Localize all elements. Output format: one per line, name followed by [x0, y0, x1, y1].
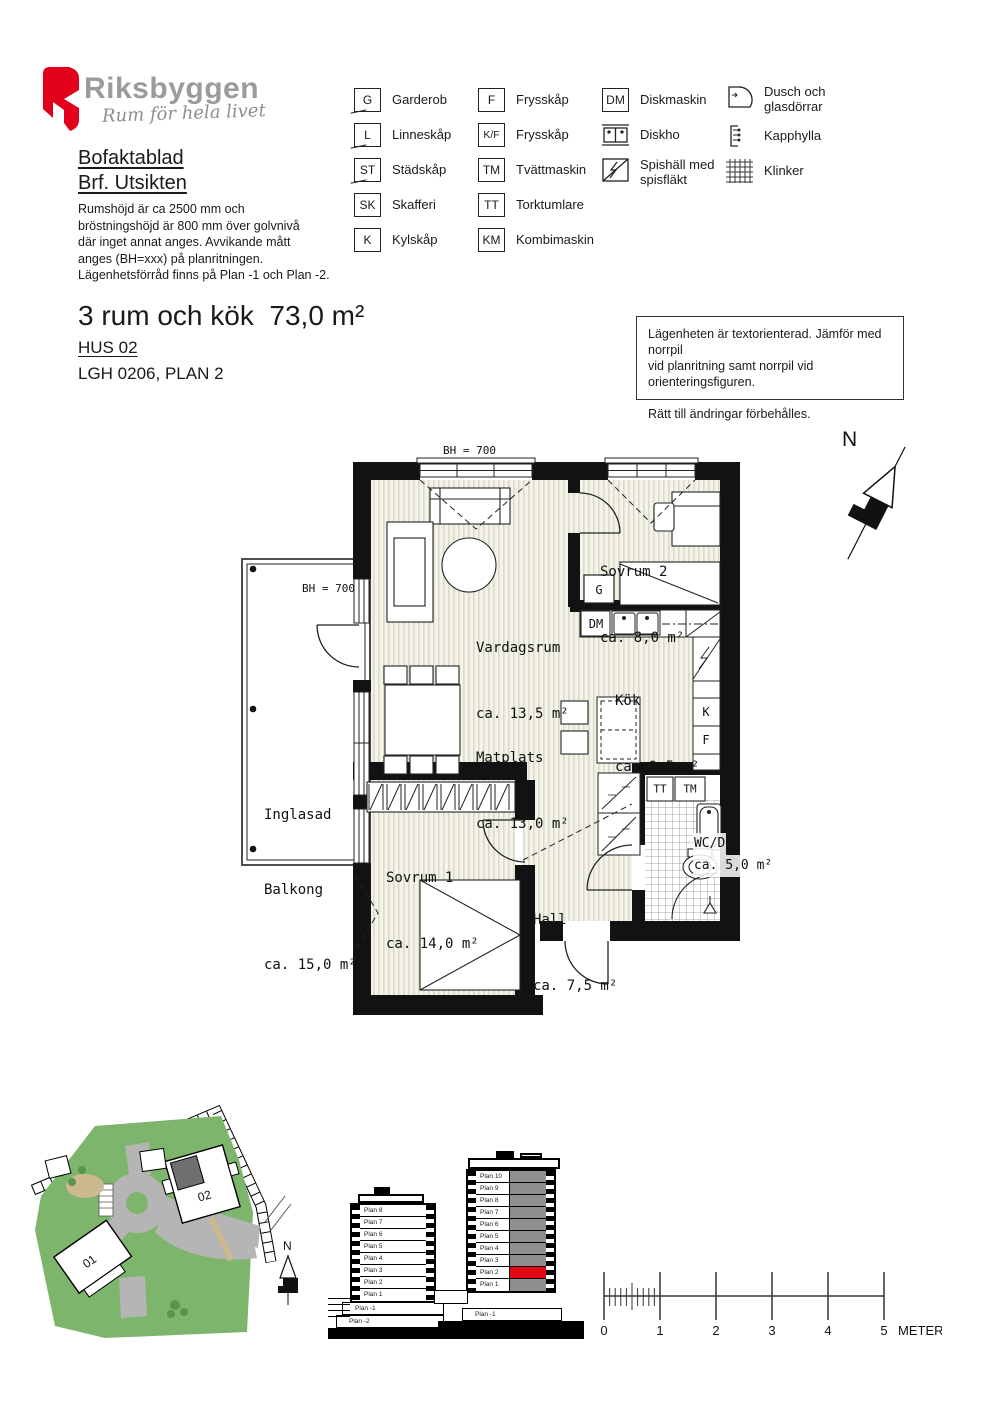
legend-item-frysskap: F Frysskåp — [478, 88, 594, 112]
legend-item-kylskap: K Kylskåp — [354, 228, 451, 252]
diskmaskin-symbol: DM — [602, 88, 629, 112]
skafferi-symbol: SK — [354, 193, 381, 217]
marker-torktumlare: TT — [653, 783, 666, 796]
scale-bar: 0 1 2 3 4 5 METER — [592, 1262, 942, 1342]
floor-row: Plan 10 — [468, 1171, 554, 1183]
description-line: Lägenhetsförråd finns på Plan -1 och Pla… — [78, 267, 330, 284]
building-right: Plan 10Plan 9Plan 8Plan 7Plan 6Plan 5Pla… — [466, 1169, 556, 1293]
floor-row: Plan 6 — [468, 1219, 554, 1231]
legend-item-spishall: Spishäll med spisfläkt — [602, 158, 720, 182]
description-line: bröstningshöjd är 800 mm över golvnivå — [78, 218, 330, 235]
doc-title: Bofaktablad Brf. Utsikten — [78, 146, 187, 196]
note-line: Lägenheten är textorienterad. Jämför med… — [648, 326, 892, 358]
floor-row: Plan 9 — [468, 1183, 554, 1195]
floor-row: Plan 2 — [352, 1277, 434, 1289]
floor-row: Plan 8 — [352, 1205, 434, 1217]
room-sovrum1: Sovrum 1 ca. 14,0 m² — [386, 823, 479, 999]
description-line: där inget annat anges. Avvikande mått — [78, 234, 330, 251]
floor-row: Plan 3 — [352, 1265, 434, 1277]
site-playground — [66, 1174, 104, 1198]
scale-label-0: 0 — [600, 1323, 607, 1338]
floor-row: Plan 2 — [468, 1267, 554, 1279]
north-label-site: N — [283, 1239, 292, 1253]
right-floor-list: Plan 10Plan 9Plan 8Plan 7Plan 6Plan 5Pla… — [468, 1171, 554, 1291]
doc-title-line2: Brf. Utsikten — [78, 171, 187, 196]
marker-garderob: G — [595, 583, 602, 597]
marker-diskmaskin: DM — [589, 617, 603, 631]
legend-item-torktumlare: TT Torktumlare — [478, 193, 594, 217]
marker-tvattmaskin: TM — [683, 783, 696, 796]
kombimaskin-symbol: KM — [478, 228, 505, 252]
scale-label-1: 1 — [656, 1323, 663, 1338]
riksbyggen-logo — [39, 64, 83, 134]
brand-tagline: Rum för hela livet — [102, 100, 266, 127]
ground — [328, 1328, 444, 1339]
connector — [434, 1290, 468, 1304]
legend-item-klinker: Klinker — [726, 159, 848, 183]
site-shed — [140, 1148, 167, 1171]
tvattmaskin-symbol: TM — [478, 158, 505, 182]
description-line: anges (BH=xxx) på planritningen. — [78, 251, 330, 268]
bh-balcony-label: BH = 700 — [302, 582, 355, 595]
building-left: Plan 8Plan 7Plan 6Plan 5Plan 4Plan 3Plan… — [350, 1203, 436, 1303]
legend-column-2: F Frysskåp K/F Frysskåp TM Tvättmaskin T… — [478, 88, 594, 263]
apartment-unit: LGH 0206, PLAN 2 — [78, 364, 224, 384]
frysskap-symbol: F — [478, 88, 505, 112]
floor-row: Plan 4 — [352, 1253, 434, 1265]
legend-item-kombimaskin: KM Kombimaskin — [478, 228, 594, 252]
floor-plan: BH = 700 BH = 700 Vardagsrum ca. 13,5 m²… — [238, 443, 746, 1028]
scale-label-2: 2 — [712, 1323, 719, 1338]
scale-label-5: 5 — [880, 1323, 887, 1338]
linneskap-symbol: L — [354, 123, 381, 147]
kylskap-symbol: K — [354, 228, 381, 252]
room-matplats: Matplats ca. 13,0 m² — [476, 703, 569, 879]
room-balkong: Inglasad Balkong ca. 15,0 m² — [264, 753, 357, 1028]
room-wcd: WC/D ca. 5,0 m² — [646, 811, 773, 899]
legend-item-tvattmaskin: TM Tvättmaskin — [478, 158, 594, 182]
description-line: Rumshöjd är ca 2500 mm och — [78, 201, 330, 218]
roof-left — [358, 1194, 424, 1203]
legend-item-dusch: Dusch och glasdörrar — [726, 85, 848, 109]
roundabout-center — [126, 1192, 148, 1214]
legend-item-kylfrys: K/F Frysskåp — [478, 123, 594, 147]
north-label-main: N — [842, 428, 857, 451]
window-strip — [352, 1205, 360, 1301]
kapphylla-icon — [726, 124, 753, 148]
room-hall: Hall ca. 7,5 m² — [533, 865, 617, 1041]
room-kok: Kök ca. 9,5 m² — [615, 646, 699, 822]
diskho-icon — [602, 123, 629, 147]
floor-row: Plan 7 — [468, 1207, 554, 1219]
window-strip — [426, 1205, 434, 1301]
stadskap-symbol: ST — [354, 158, 381, 182]
kylfrys-symbol: K/F — [478, 123, 505, 147]
garderob-symbol: G — [354, 88, 381, 112]
floor-row: Plan 4 — [468, 1243, 554, 1255]
marker-frysskap: F — [702, 733, 709, 747]
klinker-icon — [726, 159, 753, 183]
roof-right — [468, 1158, 560, 1169]
legend-item-diskmaskin: DM Diskmaskin — [602, 88, 720, 112]
legend-item-kapphylla: Kapphylla — [726, 124, 848, 148]
marker-kylskap: K — [702, 705, 709, 719]
legend-column-4: Dusch och glasdörrar Kapphylla Klinker — [726, 85, 848, 194]
north-arrow-main: N — [836, 426, 916, 571]
scale-bar-drawing: 0 1 2 3 4 5 METER — [592, 1262, 942, 1342]
window-strip — [546, 1171, 554, 1291]
legend-item-skafferi: SK Skafferi — [354, 193, 451, 217]
right-basement: Plan -1 — [462, 1308, 562, 1321]
dusch-icon — [726, 85, 753, 109]
floor-row: Plan 7 — [352, 1217, 434, 1229]
left-floor-list: Plan 8Plan 7Plan 6Plan 5Plan 4Plan 3Plan… — [352, 1205, 434, 1301]
site-plan-drawing: 02 01 N — [25, 1100, 320, 1355]
north-arrow-main-icon: N — [836, 426, 916, 571]
scale-label-4: 4 — [824, 1323, 831, 1338]
scale-unit: METER — [898, 1323, 942, 1338]
legend-item-garderob: G Garderob — [354, 88, 451, 112]
floor-row: Plan 6 — [352, 1229, 434, 1241]
building-elevations: Plan 8Plan 7Plan 6Plan 5Plan 4Plan 3Plan… — [328, 1150, 584, 1345]
torktumlare-symbol: TT — [478, 193, 505, 217]
north-arrow-site: N — [278, 1239, 298, 1305]
floor-row: Plan 3 — [468, 1255, 554, 1267]
description: Rumshöjd är ca 2500 mm och bröstningshöj… — [78, 201, 330, 284]
window-strip — [468, 1171, 476, 1291]
spishall-icon — [602, 158, 629, 182]
apartment-title: 3 rum och kök 73,0 m² — [78, 300, 364, 332]
apartment-house: HUS 02 — [78, 338, 138, 358]
floor-row: Plan 1 — [352, 1289, 434, 1301]
note-box: Lägenheten är textorienterad. Jämför med… — [636, 316, 904, 400]
legend-column-3: DM Diskmaskin Diskho Spishäll m — [602, 88, 720, 193]
legend-item-diskho: Diskho — [602, 123, 720, 147]
floor-row: Plan 5 — [468, 1231, 554, 1243]
bofaktablad-page: Riksbyggen Rum för hela livet Bofaktabla… — [0, 0, 992, 1403]
note-line: vid planritning samt norrpil vid oriente… — [648, 358, 892, 390]
floor-row: Plan 1 — [468, 1279, 554, 1291]
floor-row: Plan 5 — [352, 1241, 434, 1253]
bh-top-label: BH = 700 — [443, 444, 496, 457]
legend-column-1: G Garderob L Linneskåp ST Städskåp SK Sk… — [354, 88, 451, 263]
left-basement-2: Plan -2 — [336, 1315, 444, 1328]
legend-item-stadskap: ST Städskåp — [354, 158, 451, 182]
floor-row: Plan 8 — [468, 1195, 554, 1207]
left-basement-1: Plan -1 — [342, 1302, 444, 1315]
legend-item-linneskap: L Linneskåp — [354, 123, 451, 147]
ground — [438, 1321, 584, 1339]
note-line: Rätt till ändringar förbehålles. — [648, 406, 892, 422]
scale-label-3: 3 — [768, 1323, 775, 1338]
site-plan: 02 01 N — [25, 1100, 320, 1355]
doc-title-line1: Bofaktablad — [78, 146, 187, 171]
